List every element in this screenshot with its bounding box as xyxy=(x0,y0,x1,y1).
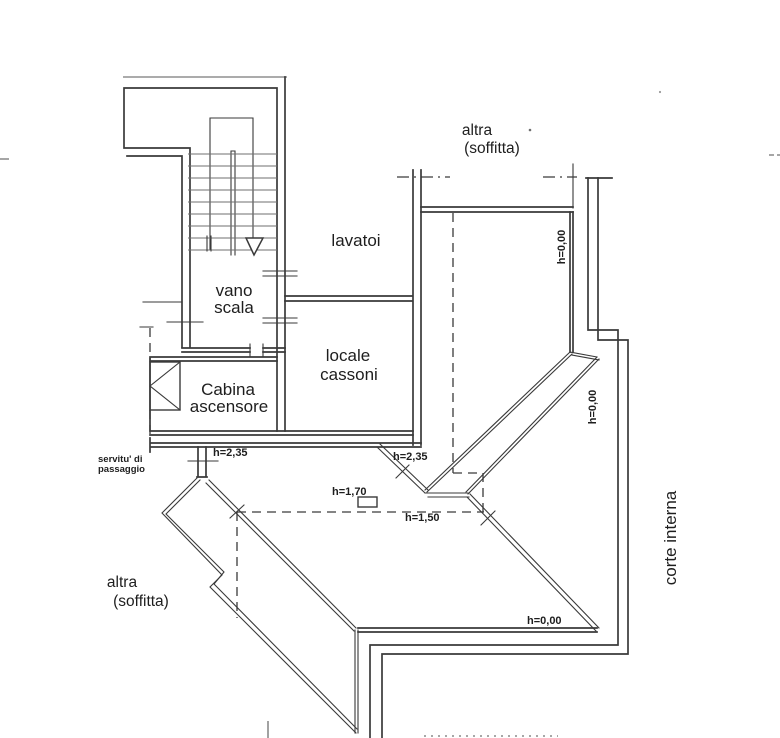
label-servitu-line2: passaggio xyxy=(98,464,145,475)
height-150: h=1,50 xyxy=(405,512,440,524)
floor-plan-page: altra (soffitta) lavatoi vano scala loca… xyxy=(0,0,780,738)
height-235-left: h=2,35 xyxy=(213,447,248,459)
height-170: h=1,70 xyxy=(332,486,367,498)
label-cassoni-line2: cassoni xyxy=(320,365,378,384)
label-cassoni-line1: locale xyxy=(326,346,370,365)
floor-plan-drawing: altra (soffitta) lavatoi vano scala loca… xyxy=(0,0,780,738)
label-altra-bottom-line2: (soffitta) xyxy=(113,593,169,610)
height-235-right: h=2,35 xyxy=(393,451,428,463)
label-altra-top-line1: altra xyxy=(462,122,493,139)
scan-marks xyxy=(0,91,780,738)
label-altra-top-line2: (soffitta) xyxy=(464,140,520,157)
height-000-bottom: h=0,00 xyxy=(527,615,562,627)
height-000-right-top: h=0,00 xyxy=(556,230,568,265)
vano-scala-walls xyxy=(182,344,285,356)
stair-direction-arrow xyxy=(246,238,263,255)
label-corte-interna: corte interna xyxy=(661,490,680,585)
stair-block xyxy=(123,77,297,431)
height-000-right-mid: h=0,00 xyxy=(587,390,599,425)
label-cabina-line2: ascensore xyxy=(190,397,268,416)
lower-diagonals xyxy=(162,444,599,733)
cassoni-walls xyxy=(285,170,421,445)
diagonal-band xyxy=(425,352,599,497)
label-vano-line2: scala xyxy=(214,298,254,317)
label-altra-bottom-line1: altra xyxy=(107,574,138,591)
height-marker-box xyxy=(358,497,377,507)
elevator-shaft-symbol xyxy=(150,362,180,410)
label-lavatoi: lavatoi xyxy=(331,231,380,250)
